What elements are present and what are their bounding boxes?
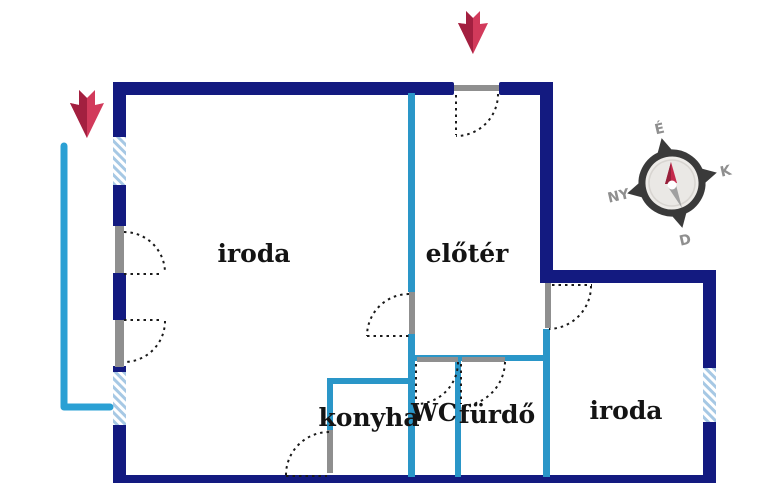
- left-wall-segment-4: [113, 366, 126, 373]
- room-label-iroda-right: iroda: [589, 396, 662, 425]
- door-bar: [115, 226, 124, 273]
- door-bar: [454, 85, 499, 91]
- iroda-right-left-wall: [543, 329, 550, 477]
- compass-label-north: É: [653, 120, 666, 139]
- door-wc: [416, 357, 458, 404]
- door-bar: [327, 430, 333, 473]
- door-swing-arc: [367, 294, 409, 336]
- compass-label-south: D: [678, 231, 693, 249]
- room-label-konyha: konyha: [318, 403, 419, 432]
- door-swing-arc: [124, 321, 165, 362]
- entrance-arrow-main: [458, 11, 488, 54]
- left-wall-segment-5: [113, 425, 126, 483]
- eloter-right-wall: [540, 82, 553, 283]
- entrance-arrow-left: [70, 90, 104, 138]
- floor-plan-image: É K D NY iroda előtér konyha WC fürdő ir…: [0, 0, 770, 483]
- door-konyha: [286, 430, 333, 476]
- door-eloter-to-iroda-right: [545, 283, 592, 329]
- door-bar: [409, 292, 415, 334]
- window-right: [703, 368, 716, 422]
- top-wall-left-segment: [113, 82, 454, 95]
- room-label-iroda-left: iroda: [217, 239, 290, 268]
- outside-access-line: [64, 146, 110, 407]
- window-left-top: [113, 137, 126, 185]
- room-label-wc: WC: [410, 398, 457, 427]
- arrow-shade: [458, 11, 473, 54]
- compass-rose: É K D NY: [593, 107, 747, 263]
- konyha-top-wall: [327, 378, 415, 384]
- room-labels: iroda előtér konyha WC fürdő iroda: [217, 239, 662, 432]
- door-swing-arc: [549, 286, 591, 329]
- left-wall-segment-3: [113, 273, 126, 320]
- door-bar: [417, 357, 458, 362]
- door-bar: [545, 283, 551, 328]
- arrow-shade: [70, 90, 87, 138]
- mid-horizontal-wall: [540, 270, 716, 283]
- door-swing-arc: [456, 94, 498, 136]
- door-swing-arc: [124, 232, 165, 273]
- eloter-iroda-divider-upper: [408, 93, 415, 292]
- room-label-eloter: előtér: [426, 239, 510, 268]
- room-label-furdo: fürdő: [459, 400, 535, 429]
- window-left-bottom: [113, 372, 126, 425]
- compass-label-west: NY: [606, 186, 632, 207]
- door-furdo: [461, 357, 505, 406]
- door-swing-arc: [286, 432, 329, 475]
- needle-pivot: [668, 181, 677, 190]
- door-left-upper: [115, 226, 165, 274]
- left-wall-segment-2: [113, 185, 126, 226]
- compass-label-east: K: [719, 162, 734, 180]
- door-main-entrance: [454, 85, 499, 136]
- left-wall-segment-1: [113, 82, 126, 137]
- door-eloter-to-iroda: [367, 292, 415, 336]
- floor-plan-svg: É K D NY iroda előtér konyha WC fürdő ir…: [0, 0, 770, 483]
- door-left-lower: [115, 320, 165, 367]
- right-wall-segment-2: [703, 422, 716, 483]
- door-bar: [115, 320, 124, 367]
- door-bar: [462, 357, 505, 362]
- right-wall-segment-1: [703, 270, 716, 368]
